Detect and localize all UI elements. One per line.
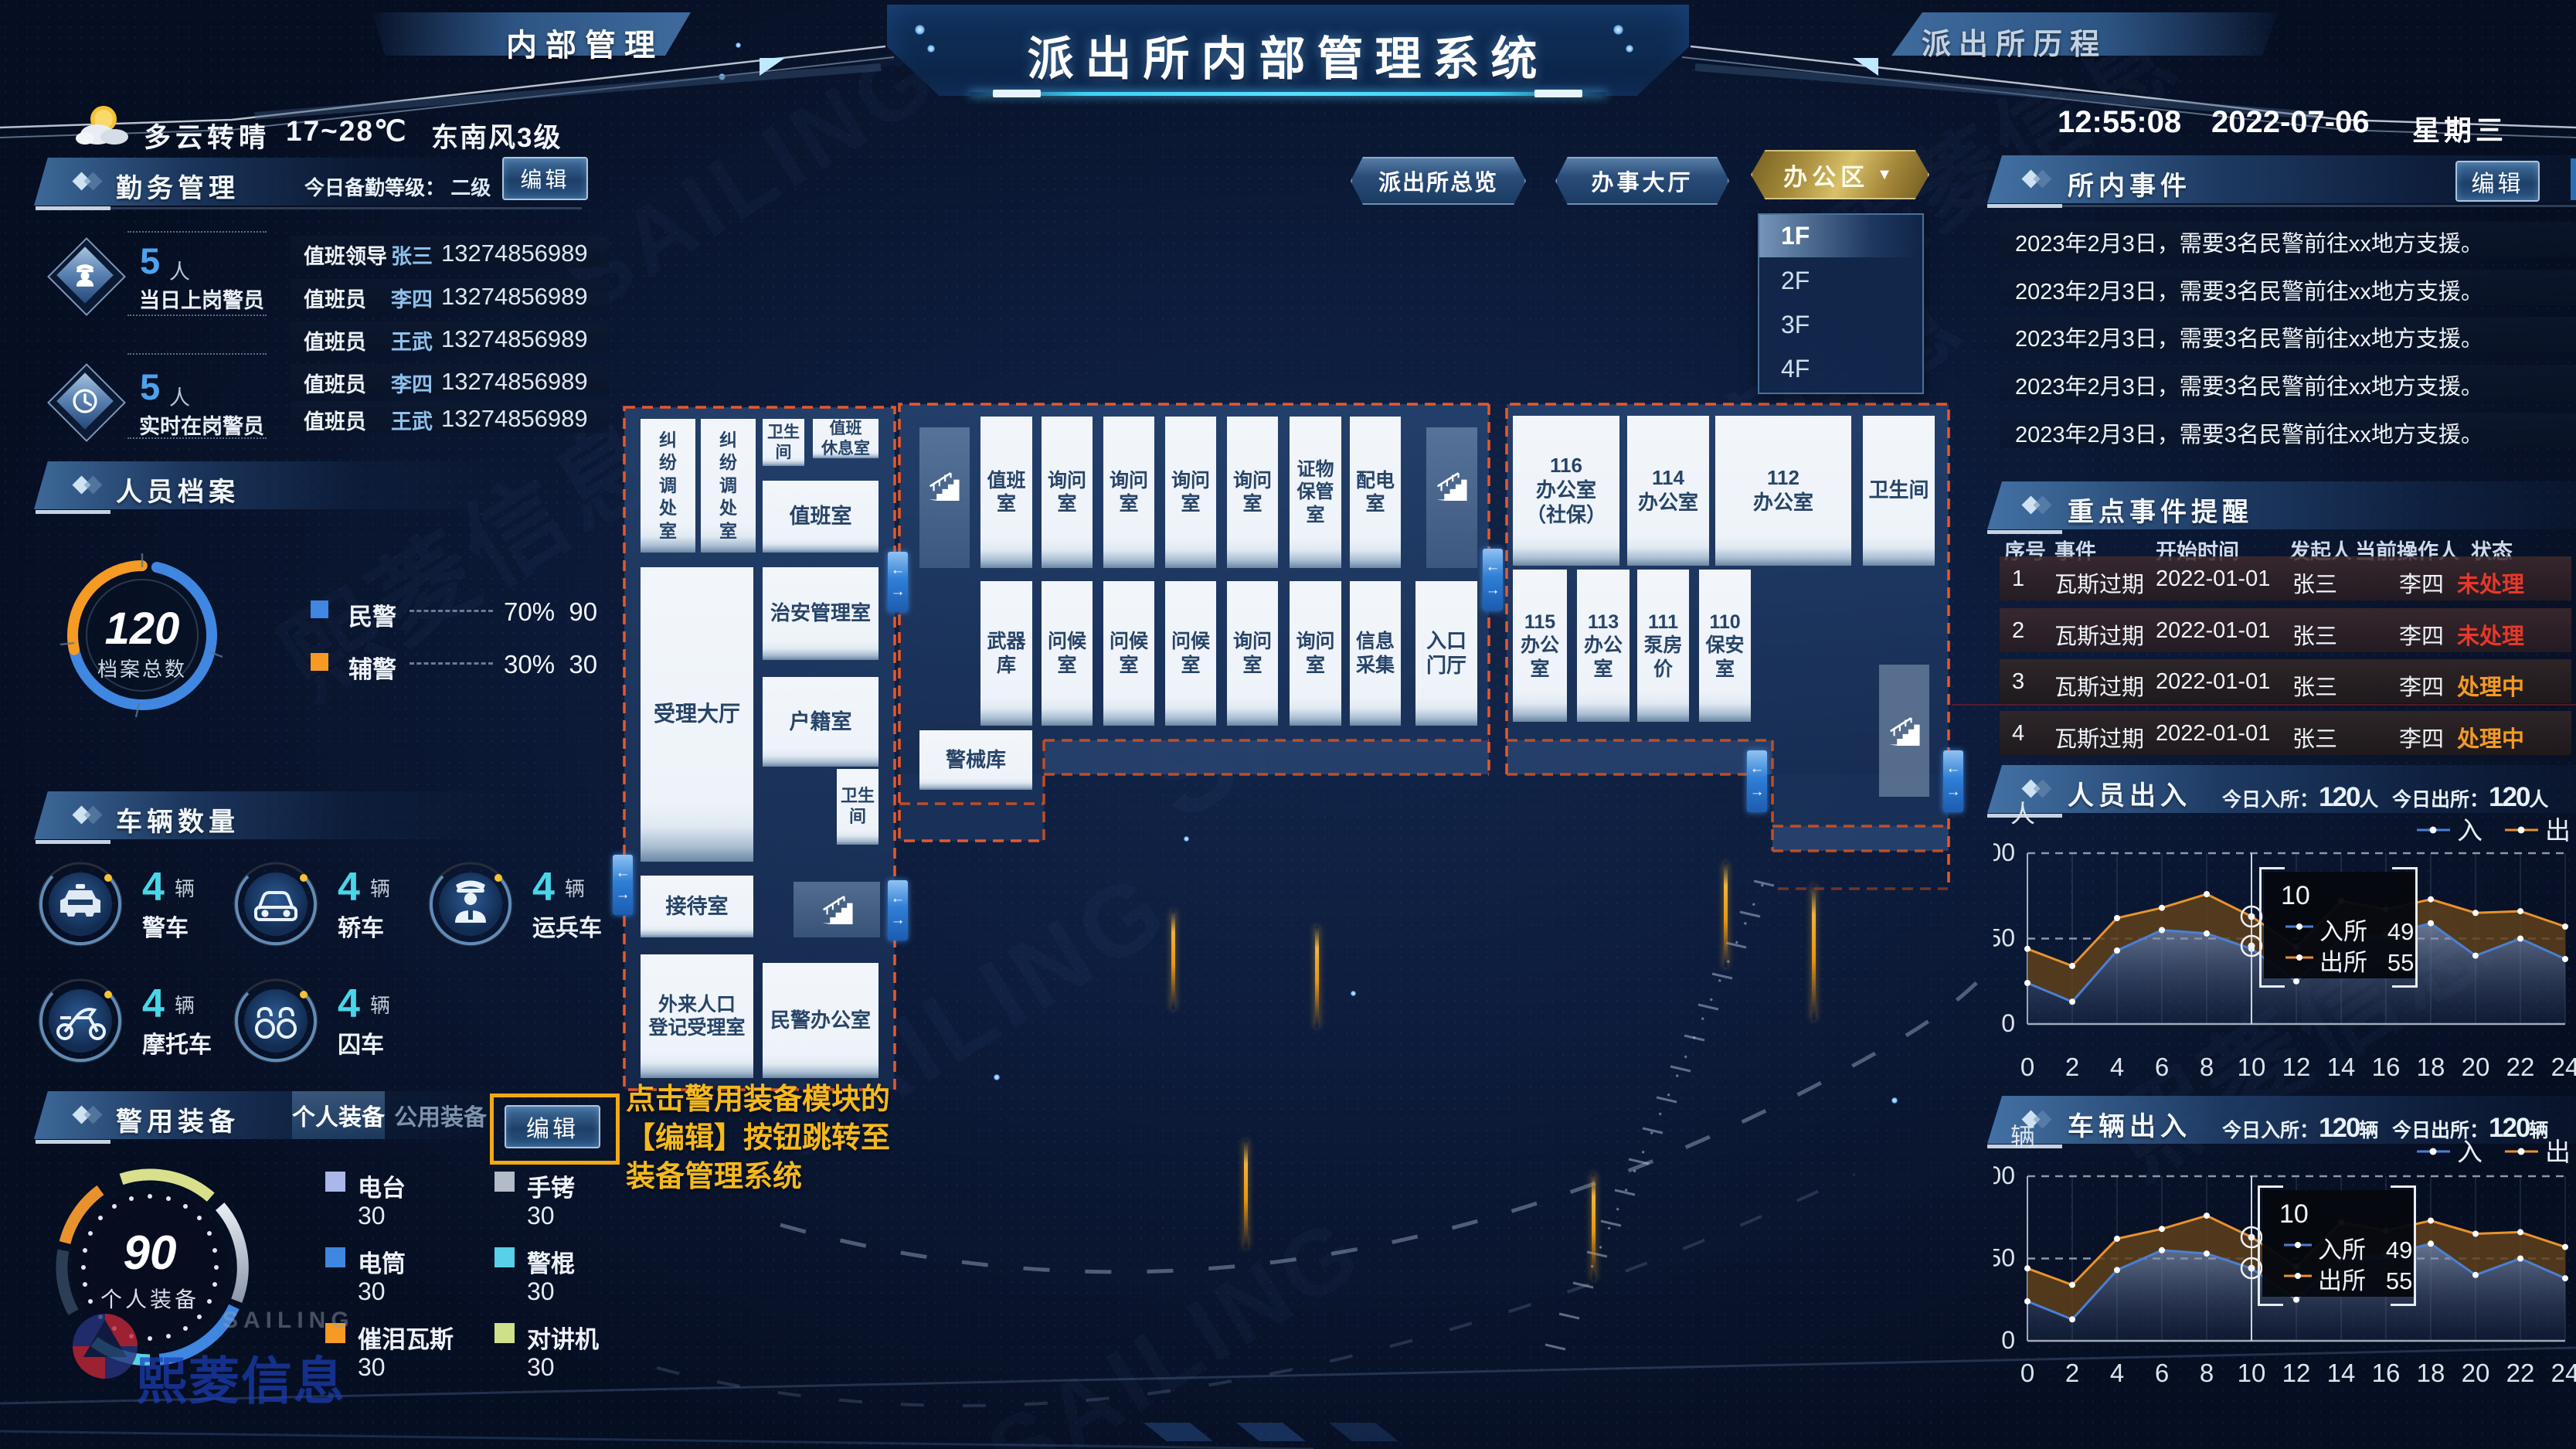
svg-text:10: 10 [2238,1053,2266,1081]
svg-text:8: 8 [2200,1359,2214,1387]
svg-text:0: 0 [2001,1326,2015,1354]
svg-text:4: 4 [2110,1359,2124,1387]
svg-text:22: 22 [2506,1053,2535,1081]
svg-text:20: 20 [2462,1053,2490,1081]
svg-text:16: 16 [2372,1359,2401,1387]
svg-text:0: 0 [2001,1009,2015,1037]
svg-text:24: 24 [2551,1053,2576,1081]
svg-text:出: 出 [2545,816,2571,845]
svg-text:辆: 辆 [2010,1123,2035,1151]
svg-text:4: 4 [2110,1053,2124,1081]
svg-text:0: 0 [2020,1359,2034,1387]
svg-text:18: 18 [2417,1359,2445,1387]
svg-text:14: 14 [2327,1053,2356,1081]
svg-text:2: 2 [2065,1359,2079,1387]
svg-text:12: 12 [2282,1053,2311,1081]
svg-text:出: 出 [2545,1138,2571,1166]
svg-text:12: 12 [2282,1359,2311,1387]
svg-text:100: 100 [1993,1162,2015,1189]
svg-text:6: 6 [2155,1053,2169,1081]
svg-text:8: 8 [2200,1053,2214,1081]
svg-text:0: 0 [2020,1053,2034,1081]
svg-text:50: 50 [1993,924,2015,952]
svg-text:20: 20 [2462,1359,2490,1387]
svg-text:50: 50 [1993,1244,2015,1272]
svg-text:入: 入 [2457,1138,2483,1166]
svg-text:18: 18 [2417,1053,2445,1081]
svg-text:10: 10 [2238,1359,2266,1387]
svg-text:6: 6 [2155,1359,2169,1387]
svg-text:2: 2 [2065,1053,2079,1081]
svg-text:人: 人 [2010,801,2035,828]
svg-text:100: 100 [1993,838,2015,866]
svg-text:24: 24 [2551,1359,2576,1387]
svg-text:14: 14 [2327,1359,2356,1387]
svg-text:入: 入 [2457,816,2483,845]
svg-text:16: 16 [2372,1053,2401,1081]
svg-text:22: 22 [2506,1359,2535,1387]
